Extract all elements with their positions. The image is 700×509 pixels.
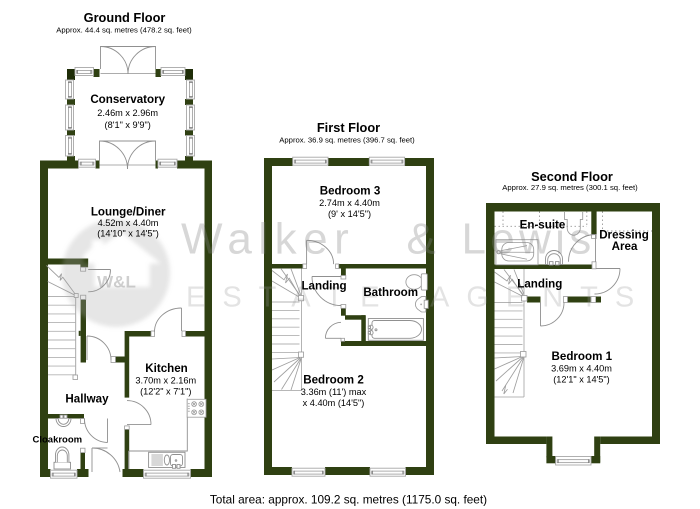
svg-text:(8'1" x 9'9"): (8'1" x 9'9") (105, 120, 151, 130)
svg-text:x 4.40m (14'5"): x 4.40m (14'5") (303, 398, 365, 408)
svg-text:(14'10" x 14'5"): (14'10" x 14'5") (97, 229, 159, 239)
svg-text:&: & (407, 215, 436, 264)
svg-text:Conservatory: Conservatory (90, 93, 165, 106)
svg-text:Second Floor: Second Floor (531, 169, 613, 184)
svg-text:Bedroom 1: Bedroom 1 (552, 350, 613, 363)
svg-text:Approx. 44.4 sq. metres (478.2: Approx. 44.4 sq. metres (478.2 sq. feet) (56, 26, 192, 35)
svg-text:Hallway: Hallway (65, 393, 109, 406)
svg-text:3.69m x 4.40m: 3.69m x 4.40m (551, 363, 612, 373)
svg-text:Walker: Walker (181, 215, 355, 264)
svg-text:Lounge/Diner: Lounge/Diner (91, 205, 166, 218)
svg-text:4.52m x 4.40m: 4.52m x 4.40m (98, 218, 159, 228)
svg-text:First Floor: First Floor (317, 120, 380, 135)
svg-text:Cloakroom: Cloakroom (32, 434, 82, 445)
svg-text:2.74m x 4.40m: 2.74m x 4.40m (319, 198, 380, 208)
svg-text:Bathroom: Bathroom (363, 286, 418, 299)
svg-text:Approx. 27.9 sq. metres (300.1: Approx. 27.9 sq. metres (300.1 sq. feet) (502, 183, 638, 192)
svg-text:Total area: approx. 109.2 sq.: Total area: approx. 109.2 sq. metres (11… (210, 493, 487, 507)
svg-text:Area: Area (612, 240, 638, 253)
svg-text:(12'2" x 7'1"): (12'2" x 7'1") (140, 387, 191, 397)
svg-text:Approx. 36.9 sq. metres (396.7: Approx. 36.9 sq. metres (396.7 sq. feet) (279, 136, 415, 145)
svg-text:W&L: W&L (97, 272, 136, 291)
svg-text:En-suite: En-suite (520, 219, 566, 232)
svg-text:Bedroom 3: Bedroom 3 (320, 184, 381, 197)
svg-text:3.36m (11') max: 3.36m (11') max (301, 387, 367, 397)
svg-text:Landing: Landing (301, 280, 346, 293)
svg-text:Landing: Landing (517, 278, 562, 291)
svg-text:2.46m x 2.96m: 2.46m x 2.96m (97, 108, 158, 118)
svg-text:Kitchen: Kitchen (145, 362, 188, 375)
svg-text:(9' x 14'5"): (9' x 14'5") (328, 209, 371, 219)
svg-text:(12'1" x 14'5"): (12'1" x 14'5") (553, 374, 610, 384)
svg-text:Bedroom 2: Bedroom 2 (303, 374, 364, 387)
svg-text:Ground Floor: Ground Floor (84, 10, 166, 25)
svg-text:3.70m x 2.16m: 3.70m x 2.16m (135, 376, 196, 386)
